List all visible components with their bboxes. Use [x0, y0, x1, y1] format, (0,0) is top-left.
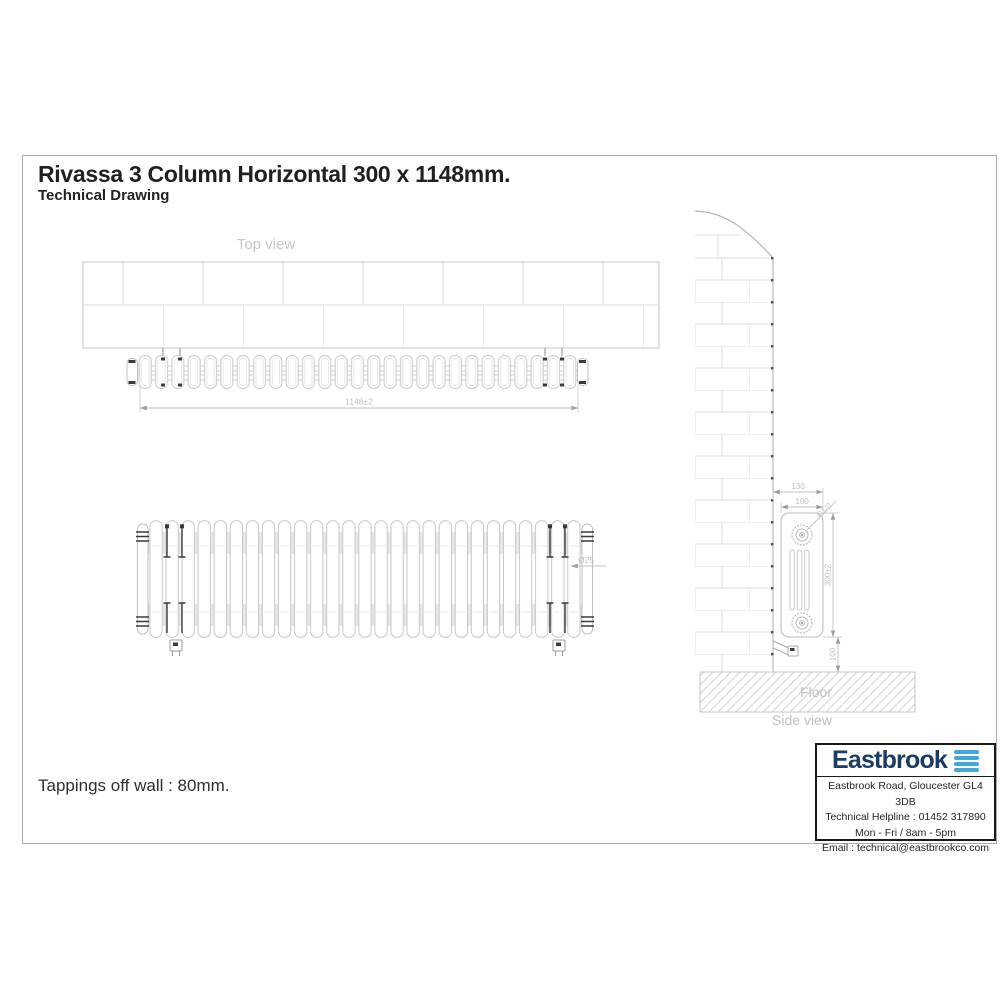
top-view-sections	[137, 355, 578, 389]
eastbrook-logo-icon	[954, 750, 979, 772]
title-block: Rivassa 3 Column Horizontal 300 x 1148mm…	[38, 161, 510, 204]
eastbrook-contact-lines: Eastbrook Road, Gloucester GL4 3DB Techn…	[817, 777, 994, 857]
eastbrook-brand-text: Eastbrook	[832, 746, 947, 775]
front-view-columns	[148, 520, 582, 638]
width-dim-text: 1148±2	[345, 397, 373, 407]
page-title: Rivassa 3 Column Horizontal 300 x 1148mm…	[38, 161, 510, 187]
address-text: Eastbrook Road, Gloucester GL4 3DB	[817, 779, 994, 810]
front-view-feet	[170, 640, 565, 656]
depth-dim-text: 100	[795, 497, 809, 506]
floor-clearance-dim-text: 100	[829, 647, 838, 661]
hours-text: Mon - Fri / 8am - 5pm	[817, 826, 994, 842]
side-view-label: Side view	[772, 712, 833, 728]
side-wall-bricks	[695, 258, 773, 672]
top-view-bracket-lines	[163, 348, 562, 356]
email-text: Email : technical@eastbrookco.com	[817, 841, 994, 857]
helpline-text: Technical Helpline : 01452 317890	[817, 810, 994, 826]
side-bracket	[773, 641, 798, 656]
wall-to-front-dim-text: 130	[791, 482, 805, 491]
column-dia-text: Ø25	[578, 555, 594, 565]
height-dim-text: 300±2	[824, 563, 833, 586]
top-view-wall	[83, 262, 659, 348]
front-view-feet-marks	[173, 643, 561, 647]
page-subtitle: Technical Drawing	[38, 187, 510, 204]
top-view-label: Top view	[206, 236, 326, 253]
technical-drawing-page: Rivassa 3 Column Horizontal 300 x 1148mm…	[0, 0, 1000, 1000]
floor-label: Floor	[800, 684, 832, 700]
eastbrook-info-box: Eastbrook Eastbrook Road, Gloucester GL4…	[815, 743, 996, 841]
front-view-drawing: Ø25	[130, 505, 650, 675]
top-view-drawing: 1148±2	[80, 255, 680, 420]
tappings-note: Tappings off wall : 80mm.	[38, 776, 230, 796]
side-view-drawing: Floor 130	[690, 200, 1000, 745]
eastbrook-logo: Eastbrook	[817, 745, 994, 777]
tapping-dim-text: G1/2	[815, 501, 834, 520]
